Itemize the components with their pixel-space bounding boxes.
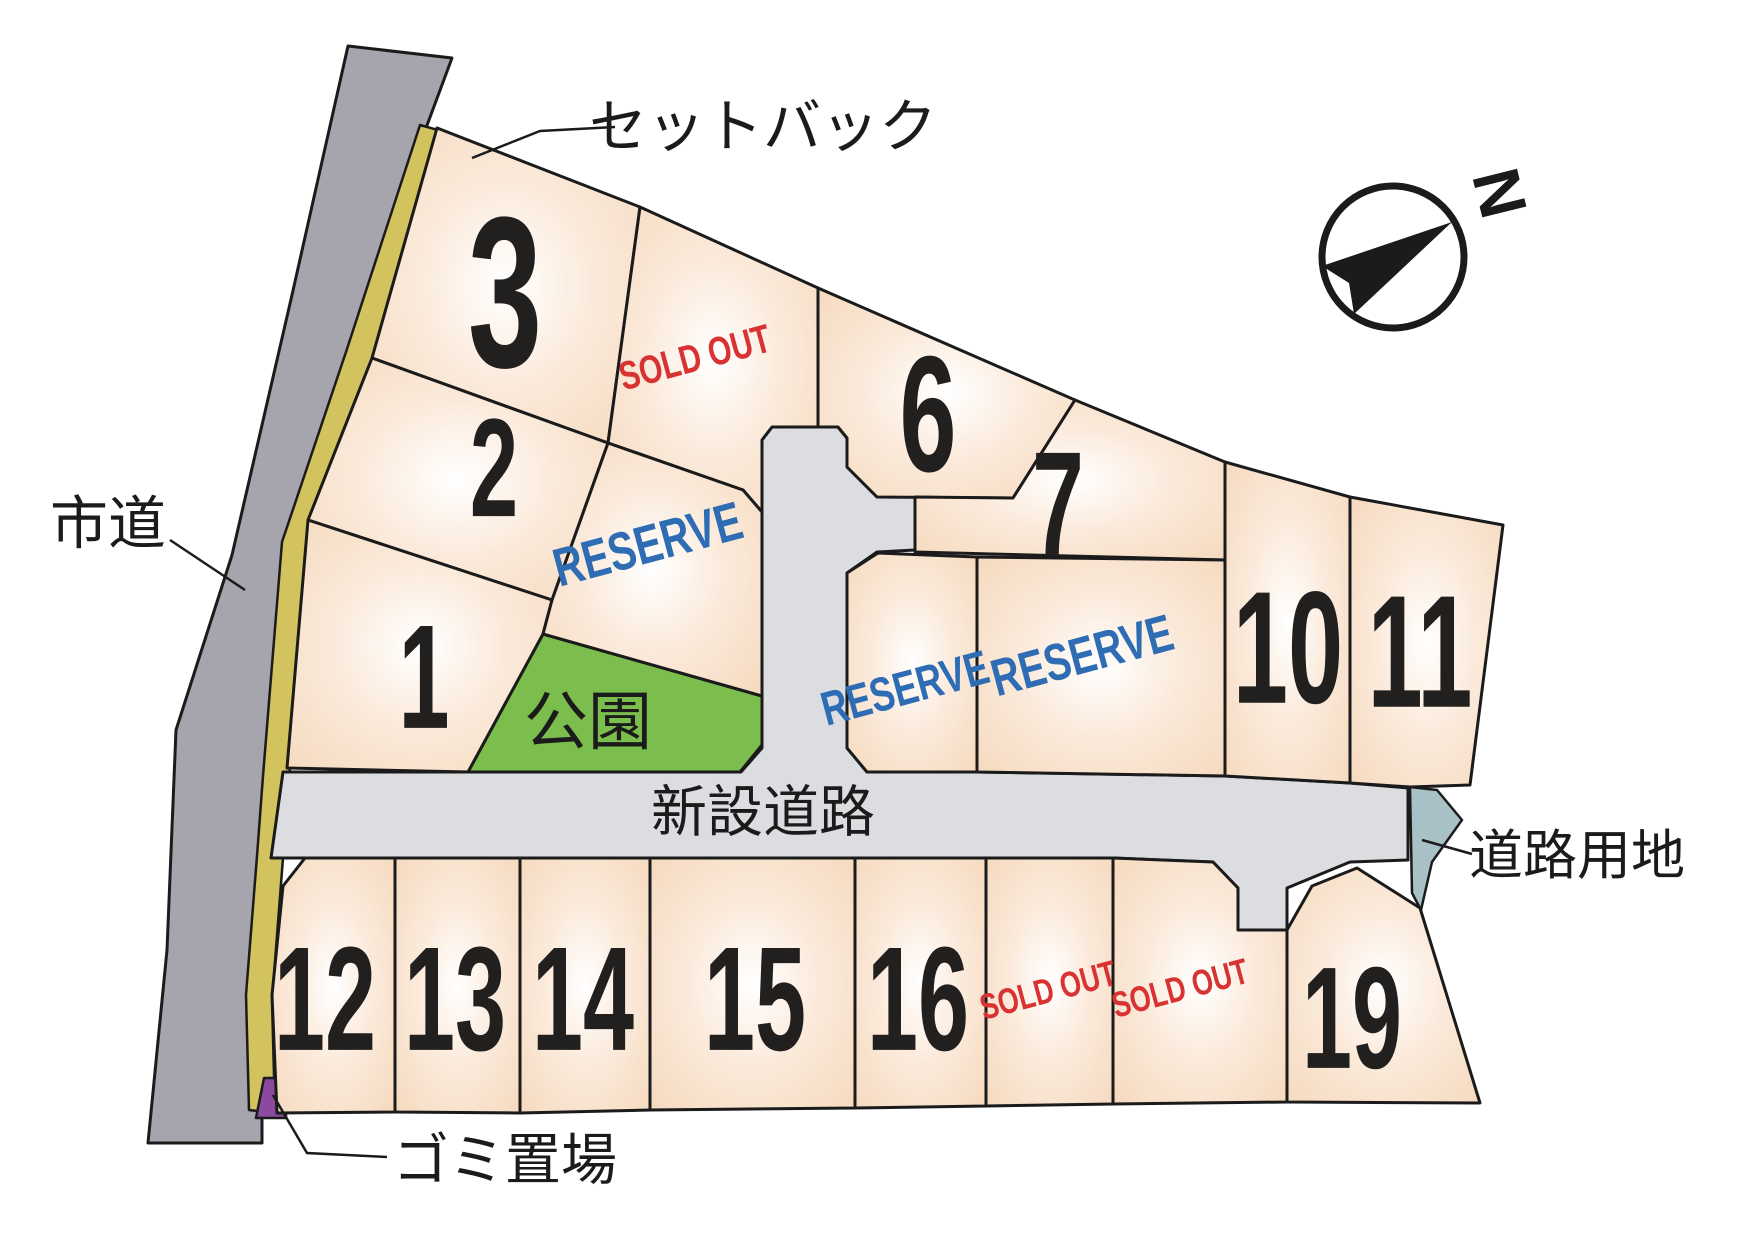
lot-11-label: 11 [1368,562,1473,741]
lot-2-label: 2 [470,390,518,546]
annotation-new-road-label: 新設道路 [651,781,875,844]
site-plan-page: 公園321SOLD OUT67RESERVERESERVERESERVE1011… [0,0,1755,1241]
lot-7-label: 7 [1032,421,1084,588]
lot-19-label: 19 [1302,937,1402,1099]
lot-15-label: 15 [704,918,806,1083]
annotation-setback-label: セットバック [589,95,937,160]
lot-16-label: 16 [867,918,969,1083]
lot-12-label: 12 [274,918,376,1083]
park-label: 公園 [524,686,652,758]
annotation-garbage-label: ゴミ置場 [393,1129,617,1192]
lot-1-label: 1 [398,596,449,761]
lot-13-label: 13 [404,918,506,1083]
subdivision-map: 公園321SOLD OUT67RESERVERESERVERESERVE1011… [0,0,1755,1241]
annotation-city-road-label: 市道 [50,492,166,557]
lot-10-label: 10 [1233,558,1343,737]
lot-6-label: 6 [900,323,957,507]
compass: N [1322,161,1542,328]
lot-3-label: 3 [468,172,542,412]
annotation-road-land-label: 道路用地 [1469,826,1685,886]
compass-north-label: N [1458,161,1541,225]
lot-14-label: 14 [532,918,634,1083]
